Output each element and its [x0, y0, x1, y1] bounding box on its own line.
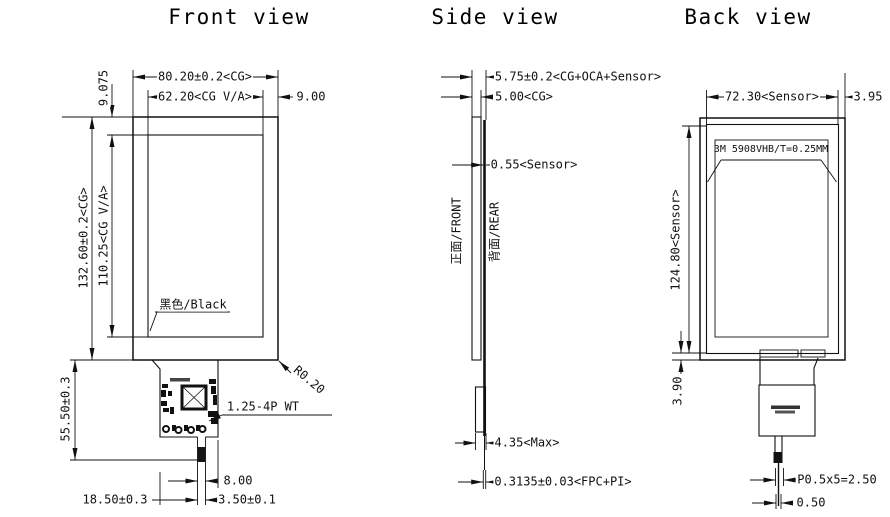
pcb-pad [163, 426, 169, 432]
dim-fpc-end: 0.50 [796, 497, 827, 510]
back-fpc-end-pad [774, 452, 783, 463]
dim-fpc-width: 3.50±0.1 [217, 494, 277, 507]
back-tail-outline [760, 357, 818, 385]
pcb-pad [176, 427, 182, 433]
stiffener-silkscreen-marks [771, 406, 800, 410]
dim-sensor-width: 72.30<Sensor> [724, 91, 820, 104]
dim-fpc-left: 18.50±0.3 [81, 494, 148, 507]
back-fpc-narrow-tail [775, 436, 782, 453]
dim-cg-width: 80.20±0.2<CG> [157, 71, 253, 84]
dim-va-width: 62.20<CG V/A> [157, 91, 253, 104]
front-view-title: Front view [167, 6, 310, 28]
back-view [672, 73, 852, 509]
side-view-title: Side view [430, 6, 559, 28]
pcb-part [213, 395, 217, 405]
back-adhesive-band-lines [708, 160, 837, 182]
back-sensor-outline [707, 125, 839, 354]
pcb-connector [208, 411, 218, 417]
back-view-title: Back view [683, 6, 812, 28]
pcb-part [211, 386, 216, 394]
dim-max-thickness: 4.35<Max> [493, 437, 560, 450]
pcb-part [170, 407, 174, 414]
label-bezel-color: 黑色/Black [158, 299, 227, 312]
back-stiffener-label-band [769, 403, 802, 416]
leader-bezel-color [150, 312, 230, 331]
side-cover-glass [472, 117, 481, 360]
technical-drawing-canvas: Front view Side view Back view 9.075 80.… [0, 0, 890, 517]
dim-bottom-margin: 3.90 [672, 376, 685, 407]
pcb-part [209, 379, 216, 384]
dim-fpc-thickness: 0.3135±0.03<FPC+PI> [493, 476, 632, 489]
dim-sensor-height: 124.80<Sensor> [670, 188, 683, 291]
dim-cg-height: 132.60±0.2<CG> [78, 186, 91, 289]
back-extension-lines [672, 73, 845, 509]
label-connector: 1.25-4P WT [226, 401, 300, 414]
front-pcb-components [161, 378, 218, 433]
dim-right-margin: 9.00 [296, 91, 327, 104]
drawing-geometry [0, 0, 890, 517]
pcb-part [161, 390, 166, 397]
pcb-pad [200, 426, 206, 432]
pcb-part [168, 391, 172, 396]
pcb-silkscreen-marks [170, 378, 190, 382]
leader-corner-radius [279, 361, 291, 373]
dim-pin-pitch: P0.5x5=2.50 [796, 474, 877, 487]
pcb-part [162, 384, 168, 388]
dim-top-bezel: 9.075 [98, 69, 111, 107]
label-adhesive: 3M 5908VHB/T=0.25MM [713, 145, 829, 156]
dim-tail-width: 8.00 [223, 475, 254, 488]
dim-tail-length: 55.50±0.3 [60, 375, 73, 442]
dim-va-height: 110.25<CG V/A> [98, 184, 111, 287]
label-rear-face: 背面/REAR [489, 201, 502, 263]
pcb-part [163, 408, 169, 412]
dim-cg-thickness: 5.00<CG> [494, 91, 554, 104]
front-cg-outline [133, 117, 278, 360]
dim-back-right-margin: 3.95 [853, 91, 884, 104]
back-adhesive-area [715, 140, 828, 337]
pcb-pad [188, 427, 194, 433]
pcb-part [161, 401, 167, 406]
side-view [441, 70, 493, 489]
stiffener-silkscreen-marks [775, 411, 795, 414]
dim-total-thickness: 5.75±0.2<CG+OCA+Sensor> [494, 71, 662, 84]
label-front-face: 正面/FRONT [451, 196, 464, 265]
dim-sensor-thickness: 0.55<Sensor> [490, 159, 579, 172]
